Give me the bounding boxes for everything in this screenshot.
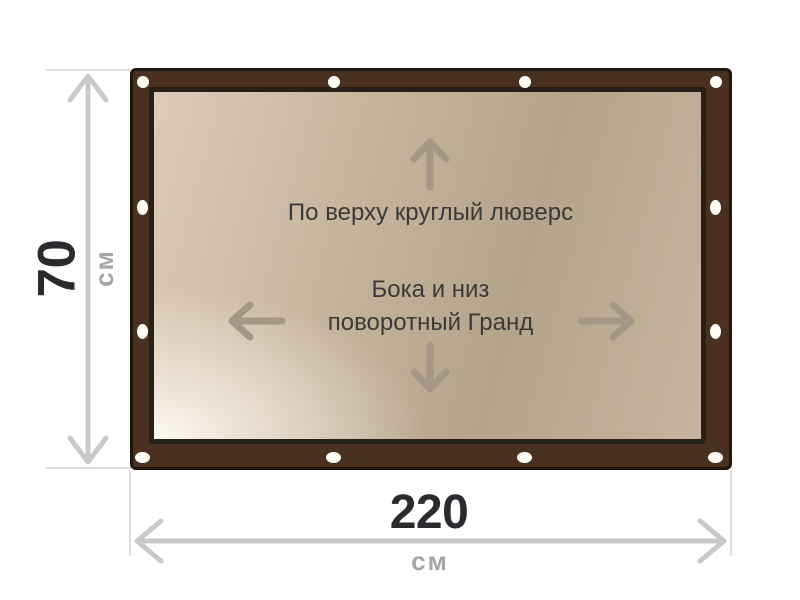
product-diagram: По верху круглый люверс Бока и низ повор… <box>0 0 800 600</box>
height-dimension-unit: см <box>91 228 117 308</box>
center-fastening-note-line1: Бока и низ <box>152 273 709 306</box>
grommet-hole-icon <box>137 200 148 215</box>
tarp-frame <box>130 68 732 470</box>
grommet-hole-icon <box>710 324 721 339</box>
top-fastening-note: По верху круглый люверс <box>152 199 709 227</box>
height-dimension-value: 70 <box>31 209 84 329</box>
width-dimension-value: 220 <box>329 489 529 537</box>
center-fastening-note: Бока и низ поворотный Гранд <box>152 273 709 339</box>
grommet-hole-icon <box>710 76 722 88</box>
grommet-hole-icon <box>137 324 148 339</box>
grommet-hole-icon <box>708 452 723 463</box>
grommet-hole-icon <box>326 452 341 463</box>
grommet-hole-icon <box>137 76 149 88</box>
grommet-hole-icon <box>519 76 531 88</box>
tarp-surface <box>149 87 706 444</box>
center-fastening-note-line2: поворотный Гранд <box>152 306 709 339</box>
grommet-hole-icon <box>517 452 532 463</box>
grommet-hole-icon <box>328 76 340 88</box>
grommet-hole-icon <box>710 200 721 215</box>
width-dimension-unit: см <box>380 548 480 574</box>
grommet-hole-icon <box>135 452 150 463</box>
